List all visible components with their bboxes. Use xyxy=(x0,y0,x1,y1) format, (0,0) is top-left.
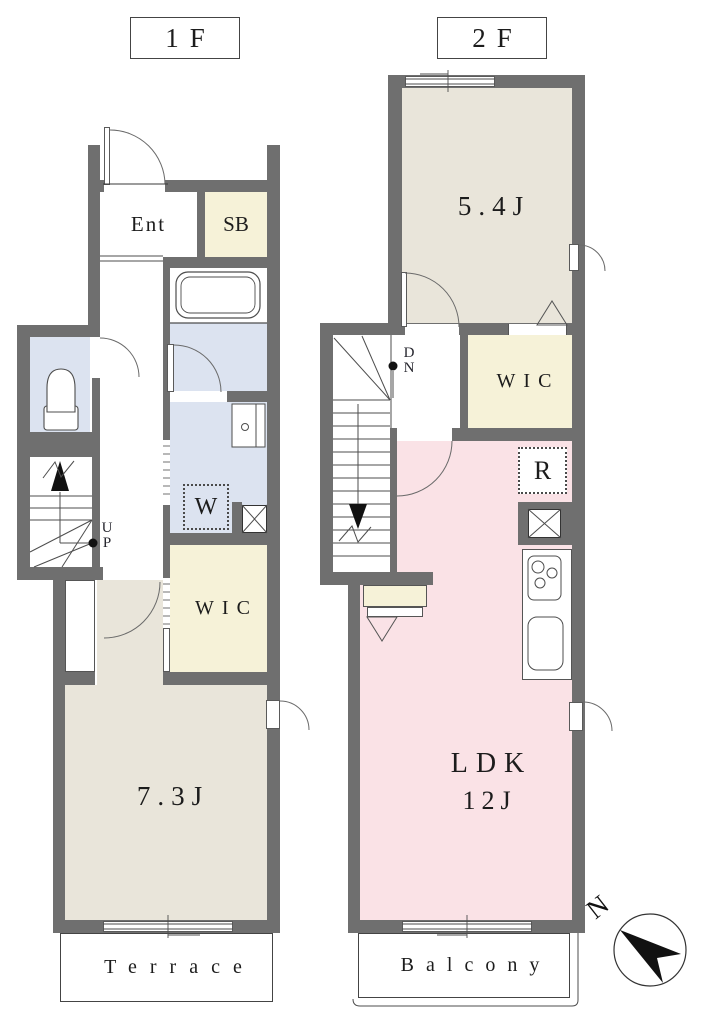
stairs-down-label-text: DN xyxy=(402,346,416,376)
bedroom-label-1f: 7.3J xyxy=(65,772,274,820)
floor-label-2f: 2F xyxy=(437,17,547,59)
shoebox-label-text: SB xyxy=(223,212,249,237)
stairs-up-1f xyxy=(30,461,98,567)
duct-x-lines xyxy=(242,505,561,538)
slope-mark-2f-bedroom xyxy=(537,301,567,325)
slide-door-ticks xyxy=(163,446,170,624)
stove-icon xyxy=(528,556,561,600)
washer-label: W xyxy=(183,484,229,530)
entrance-label: Ent xyxy=(100,192,197,257)
ldk-label-text: LDK xyxy=(451,748,533,780)
fridge-label: R xyxy=(518,447,567,494)
toilet-icon xyxy=(44,369,78,430)
bedroom-label-1f-text: 7.3J xyxy=(137,781,209,812)
ldk-size-label: 12J xyxy=(395,784,578,818)
wic-label-2f: WIC xyxy=(468,335,580,428)
washbasin-icon xyxy=(232,404,265,447)
north-arrow: N xyxy=(581,889,686,986)
ldk-door-arc xyxy=(397,441,452,496)
north-label: N xyxy=(581,889,615,925)
stairs-down-2f xyxy=(333,335,398,556)
entrance-label-text: Ent xyxy=(131,212,166,237)
wic-label-1f-text: WIC xyxy=(195,597,258,620)
stairs-down-label: DN xyxy=(402,346,416,376)
wic-label-1f: WIC xyxy=(170,545,275,672)
ldk-label: LDK xyxy=(395,746,580,782)
casement-arc-2f-bedroom xyxy=(579,245,605,271)
toilet-door-arc xyxy=(100,338,139,377)
bedroom-label-2f-text: 5.4J xyxy=(458,191,530,222)
casement-arc-ldk xyxy=(583,702,612,731)
balcony-label-text: Balcony xyxy=(401,954,552,977)
sink-icon xyxy=(528,617,563,670)
balcony-label: Balcony xyxy=(358,933,582,998)
slope-mark-ldk xyxy=(367,617,397,641)
terrace-label-text: Terrace xyxy=(104,956,255,979)
floor-label-1f-text: 1F xyxy=(165,23,216,54)
washer-label-text: W xyxy=(195,494,218,521)
bedroom-door-arc-1f xyxy=(104,582,160,638)
side-door-arc-1f xyxy=(280,701,309,730)
floor-label-2f-text: 2F xyxy=(472,23,523,54)
floor-label-1f: 1F xyxy=(130,17,240,59)
stairs-up-label-text: UP xyxy=(100,521,114,551)
wic-label-2f-text: WIC xyxy=(497,370,560,393)
shoebox-label: SB xyxy=(205,192,267,257)
linework-overlay: N xyxy=(0,0,715,1024)
stairs-up-label: UP xyxy=(100,521,114,551)
bedroom-label-2f: 5.4J xyxy=(402,182,579,230)
bathtub-icon xyxy=(176,272,260,318)
entrance-door-arc xyxy=(103,130,168,184)
ldk-size-label-text: 12J xyxy=(462,786,516,816)
window-marks-2f-top xyxy=(405,70,495,92)
bedroom-door-arc-2f xyxy=(405,273,459,327)
washroom-door-arc xyxy=(174,345,221,392)
fridge-label-text: R xyxy=(534,456,551,486)
terrace-label: Terrace xyxy=(60,933,286,1002)
floor-plan: N 1F 2F Ent SB W WIC 7.3J Terrace UP 5.4… xyxy=(0,0,715,1024)
